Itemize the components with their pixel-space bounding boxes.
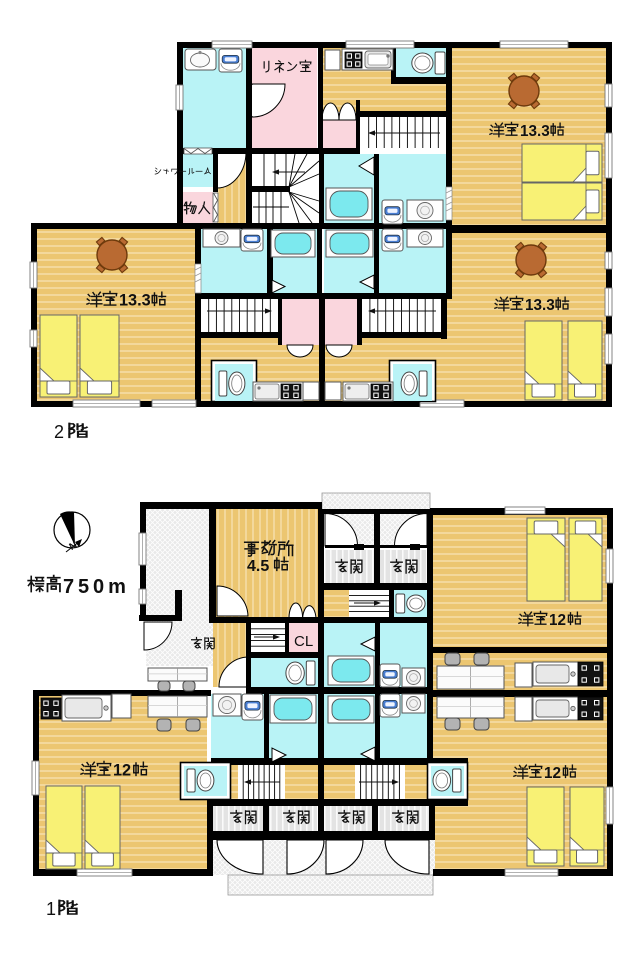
- svg-text:CL: CL: [294, 633, 313, 650]
- svg-text:12: 12: [544, 765, 561, 782]
- svg-text:13.3: 13.3: [119, 292, 151, 310]
- svg-text:13.3: 13.3: [525, 297, 555, 314]
- svg-text:13.3: 13.3: [520, 123, 550, 140]
- svg-text:750m: 750m: [63, 576, 130, 598]
- svg-text:12: 12: [549, 612, 566, 629]
- svg-text:12: 12: [113, 762, 131, 780]
- svg-text:2: 2: [54, 422, 64, 442]
- svg-text:4.5: 4.5: [247, 558, 269, 575]
- svg-text:1: 1: [46, 899, 56, 919]
